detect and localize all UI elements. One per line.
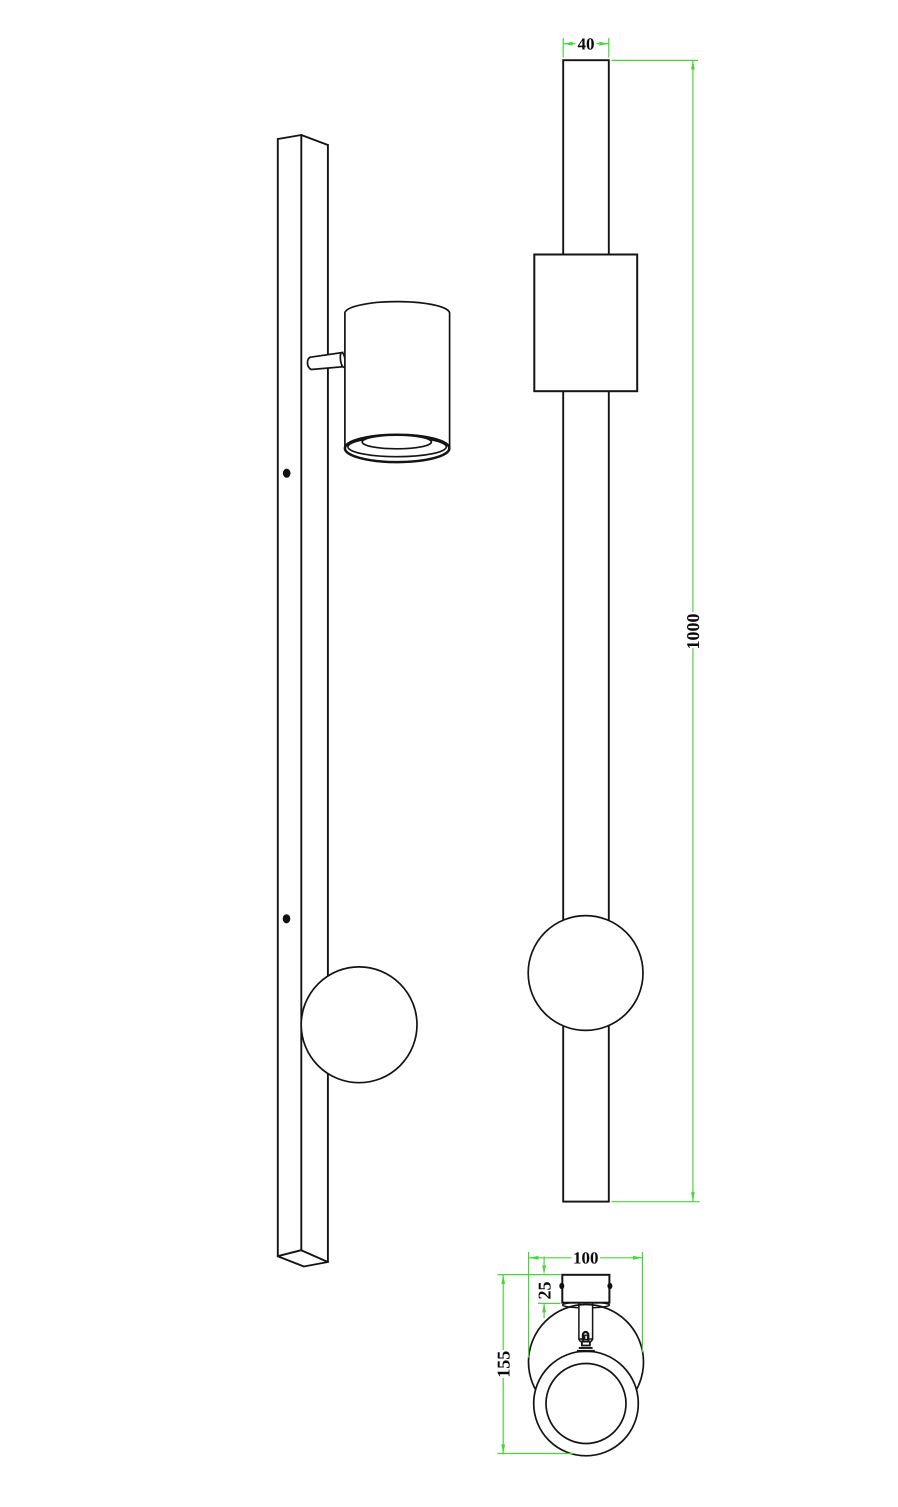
svg-text:25: 25 [534, 1282, 554, 1300]
svg-text:155: 155 [494, 1351, 514, 1378]
svg-text:1000: 1000 [683, 614, 703, 650]
svg-text:100: 100 [573, 1249, 599, 1268]
svg-text:40: 40 [578, 35, 595, 54]
